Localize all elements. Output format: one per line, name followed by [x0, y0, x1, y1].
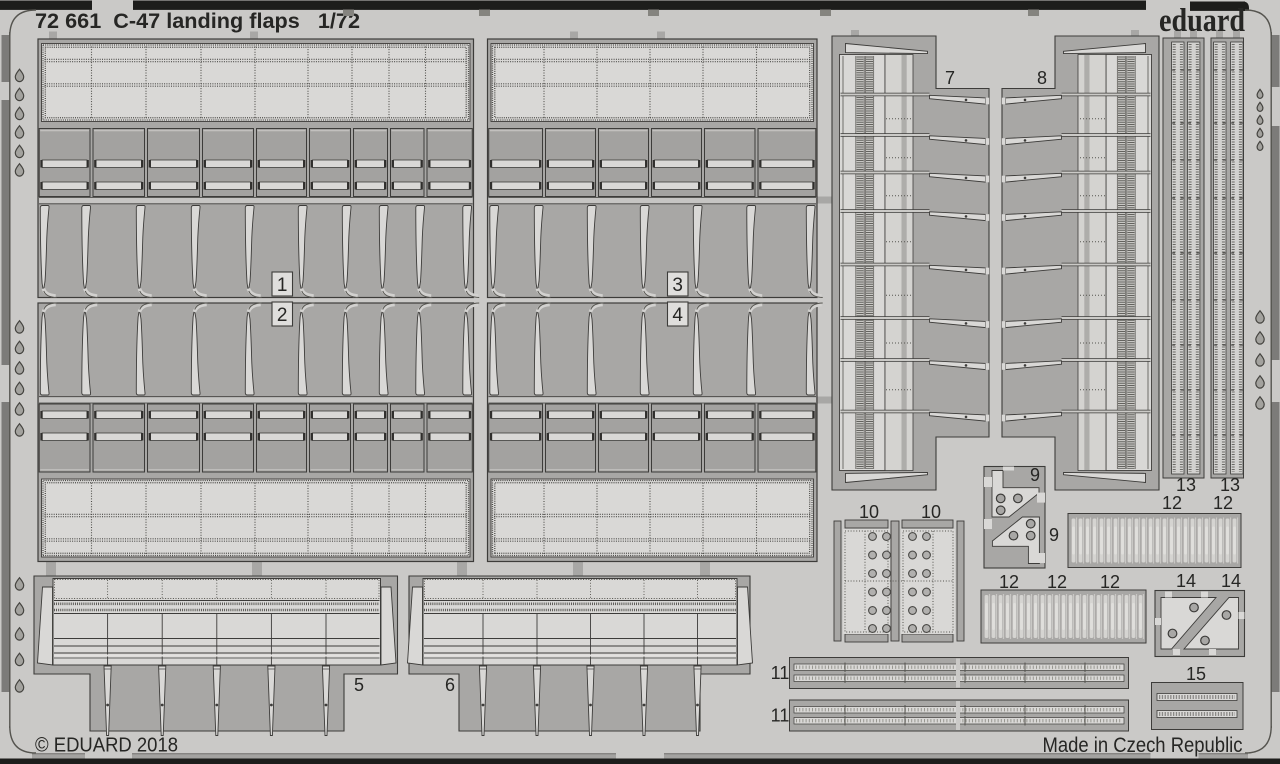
svg-text:6: 6 — [445, 675, 455, 695]
svg-text:1: 1 — [277, 275, 288, 296]
svg-text:11: 11 — [771, 663, 790, 683]
svg-text:10: 10 — [859, 502, 879, 522]
svg-text:5: 5 — [354, 675, 364, 695]
svg-text:3: 3 — [672, 275, 683, 296]
svg-text:11: 11 — [771, 706, 790, 726]
svg-text:© EDUARD 2018: © EDUARD 2018 — [35, 735, 178, 757]
svg-text:12: 12 — [1162, 493, 1182, 513]
svg-text:10: 10 — [921, 502, 941, 522]
svg-text:72 661 C-47 landing flaps 1: 72 661 C-47 landing flaps 1/72 — [35, 10, 360, 33]
svg-text:15: 15 — [1186, 664, 1206, 684]
svg-text:13: 13 — [1176, 475, 1196, 495]
svg-text:2: 2 — [277, 305, 288, 326]
svg-text:13: 13 — [1220, 475, 1240, 495]
svg-text:Made in Czech Republic: Made in Czech Republic — [1043, 733, 1243, 757]
svg-text:12: 12 — [999, 572, 1019, 592]
svg-text:12: 12 — [1213, 493, 1233, 513]
svg-text:7: 7 — [945, 68, 955, 88]
svg-text:4: 4 — [672, 305, 683, 326]
svg-text:9: 9 — [1030, 465, 1040, 485]
svg-text:14: 14 — [1176, 571, 1196, 591]
svg-text:eduard: eduard — [1159, 3, 1245, 39]
svg-text:12: 12 — [1047, 572, 1067, 592]
svg-text:9: 9 — [1049, 525, 1059, 545]
svg-text:12: 12 — [1100, 572, 1120, 592]
svg-text:14: 14 — [1221, 571, 1241, 591]
svg-text:8: 8 — [1037, 68, 1047, 88]
